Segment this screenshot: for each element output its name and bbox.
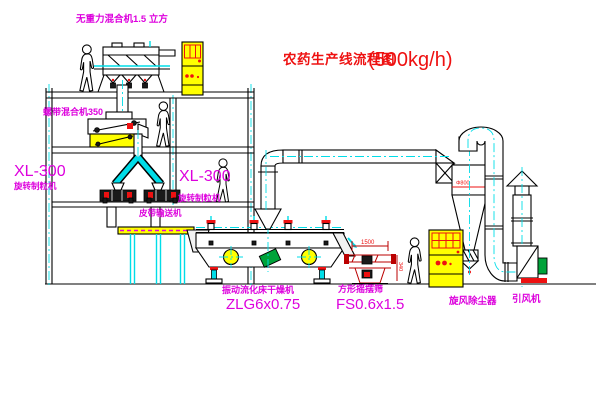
induced-draft-fan	[515, 246, 550, 284]
swing-sieve: 1500 340	[333, 233, 403, 284]
person-figure	[408, 238, 421, 283]
label-belt-conveyor: 皮带输送机	[138, 208, 182, 218]
y-splitter-pipe	[115, 157, 161, 184]
mixer-discharge-funnels	[106, 75, 152, 88]
label-sieve-length: 1500	[361, 240, 375, 246]
label-sieve-height: 340	[397, 262, 403, 271]
label-sieve-name: 方形摇摆筛	[338, 283, 383, 294]
dryer-feet	[206, 267, 330, 283]
label-granulator-left: 旋转制粒机	[13, 181, 57, 191]
label-cyclone-diameter: Φ800	[456, 181, 470, 187]
label-xl300-left: XL-300	[14, 163, 66, 180]
control-cabinet-top	[182, 42, 203, 95]
control-cabinet-right	[429, 230, 463, 287]
granulator-right	[144, 183, 180, 203]
cad-flow-diagram: Φ800	[0, 0, 600, 403]
label-cyclone: 旋风除尘器	[448, 295, 497, 307]
diagram-title-capacity: (500kg/h)	[368, 49, 453, 71]
exhaust-duct	[255, 150, 454, 229]
label-top-mixer: 无重力混合机1.5 立方	[75, 13, 168, 25]
person-figure	[80, 45, 94, 91]
fan-motor	[538, 258, 547, 274]
granulator-left	[100, 183, 136, 203]
diagram-canvas: Φ800	[0, 0, 600, 403]
label-xl300-right: XL-300	[179, 168, 231, 185]
label-dryer-name: 振动流化床干燥机	[222, 284, 294, 295]
belt-conveyor	[118, 227, 194, 284]
person-figure	[157, 102, 170, 146]
conveyor-legs	[131, 234, 185, 284]
label-fan: 引风机	[512, 293, 541, 305]
label-dryer-model: ZLG6x0.75	[226, 296, 300, 313]
label-sieve-model: FS0.6x1.5	[336, 296, 404, 313]
label-mid-mixer: 螺带混合机350	[43, 106, 103, 117]
label-granulator-right: 旋转制粒机	[177, 193, 221, 203]
